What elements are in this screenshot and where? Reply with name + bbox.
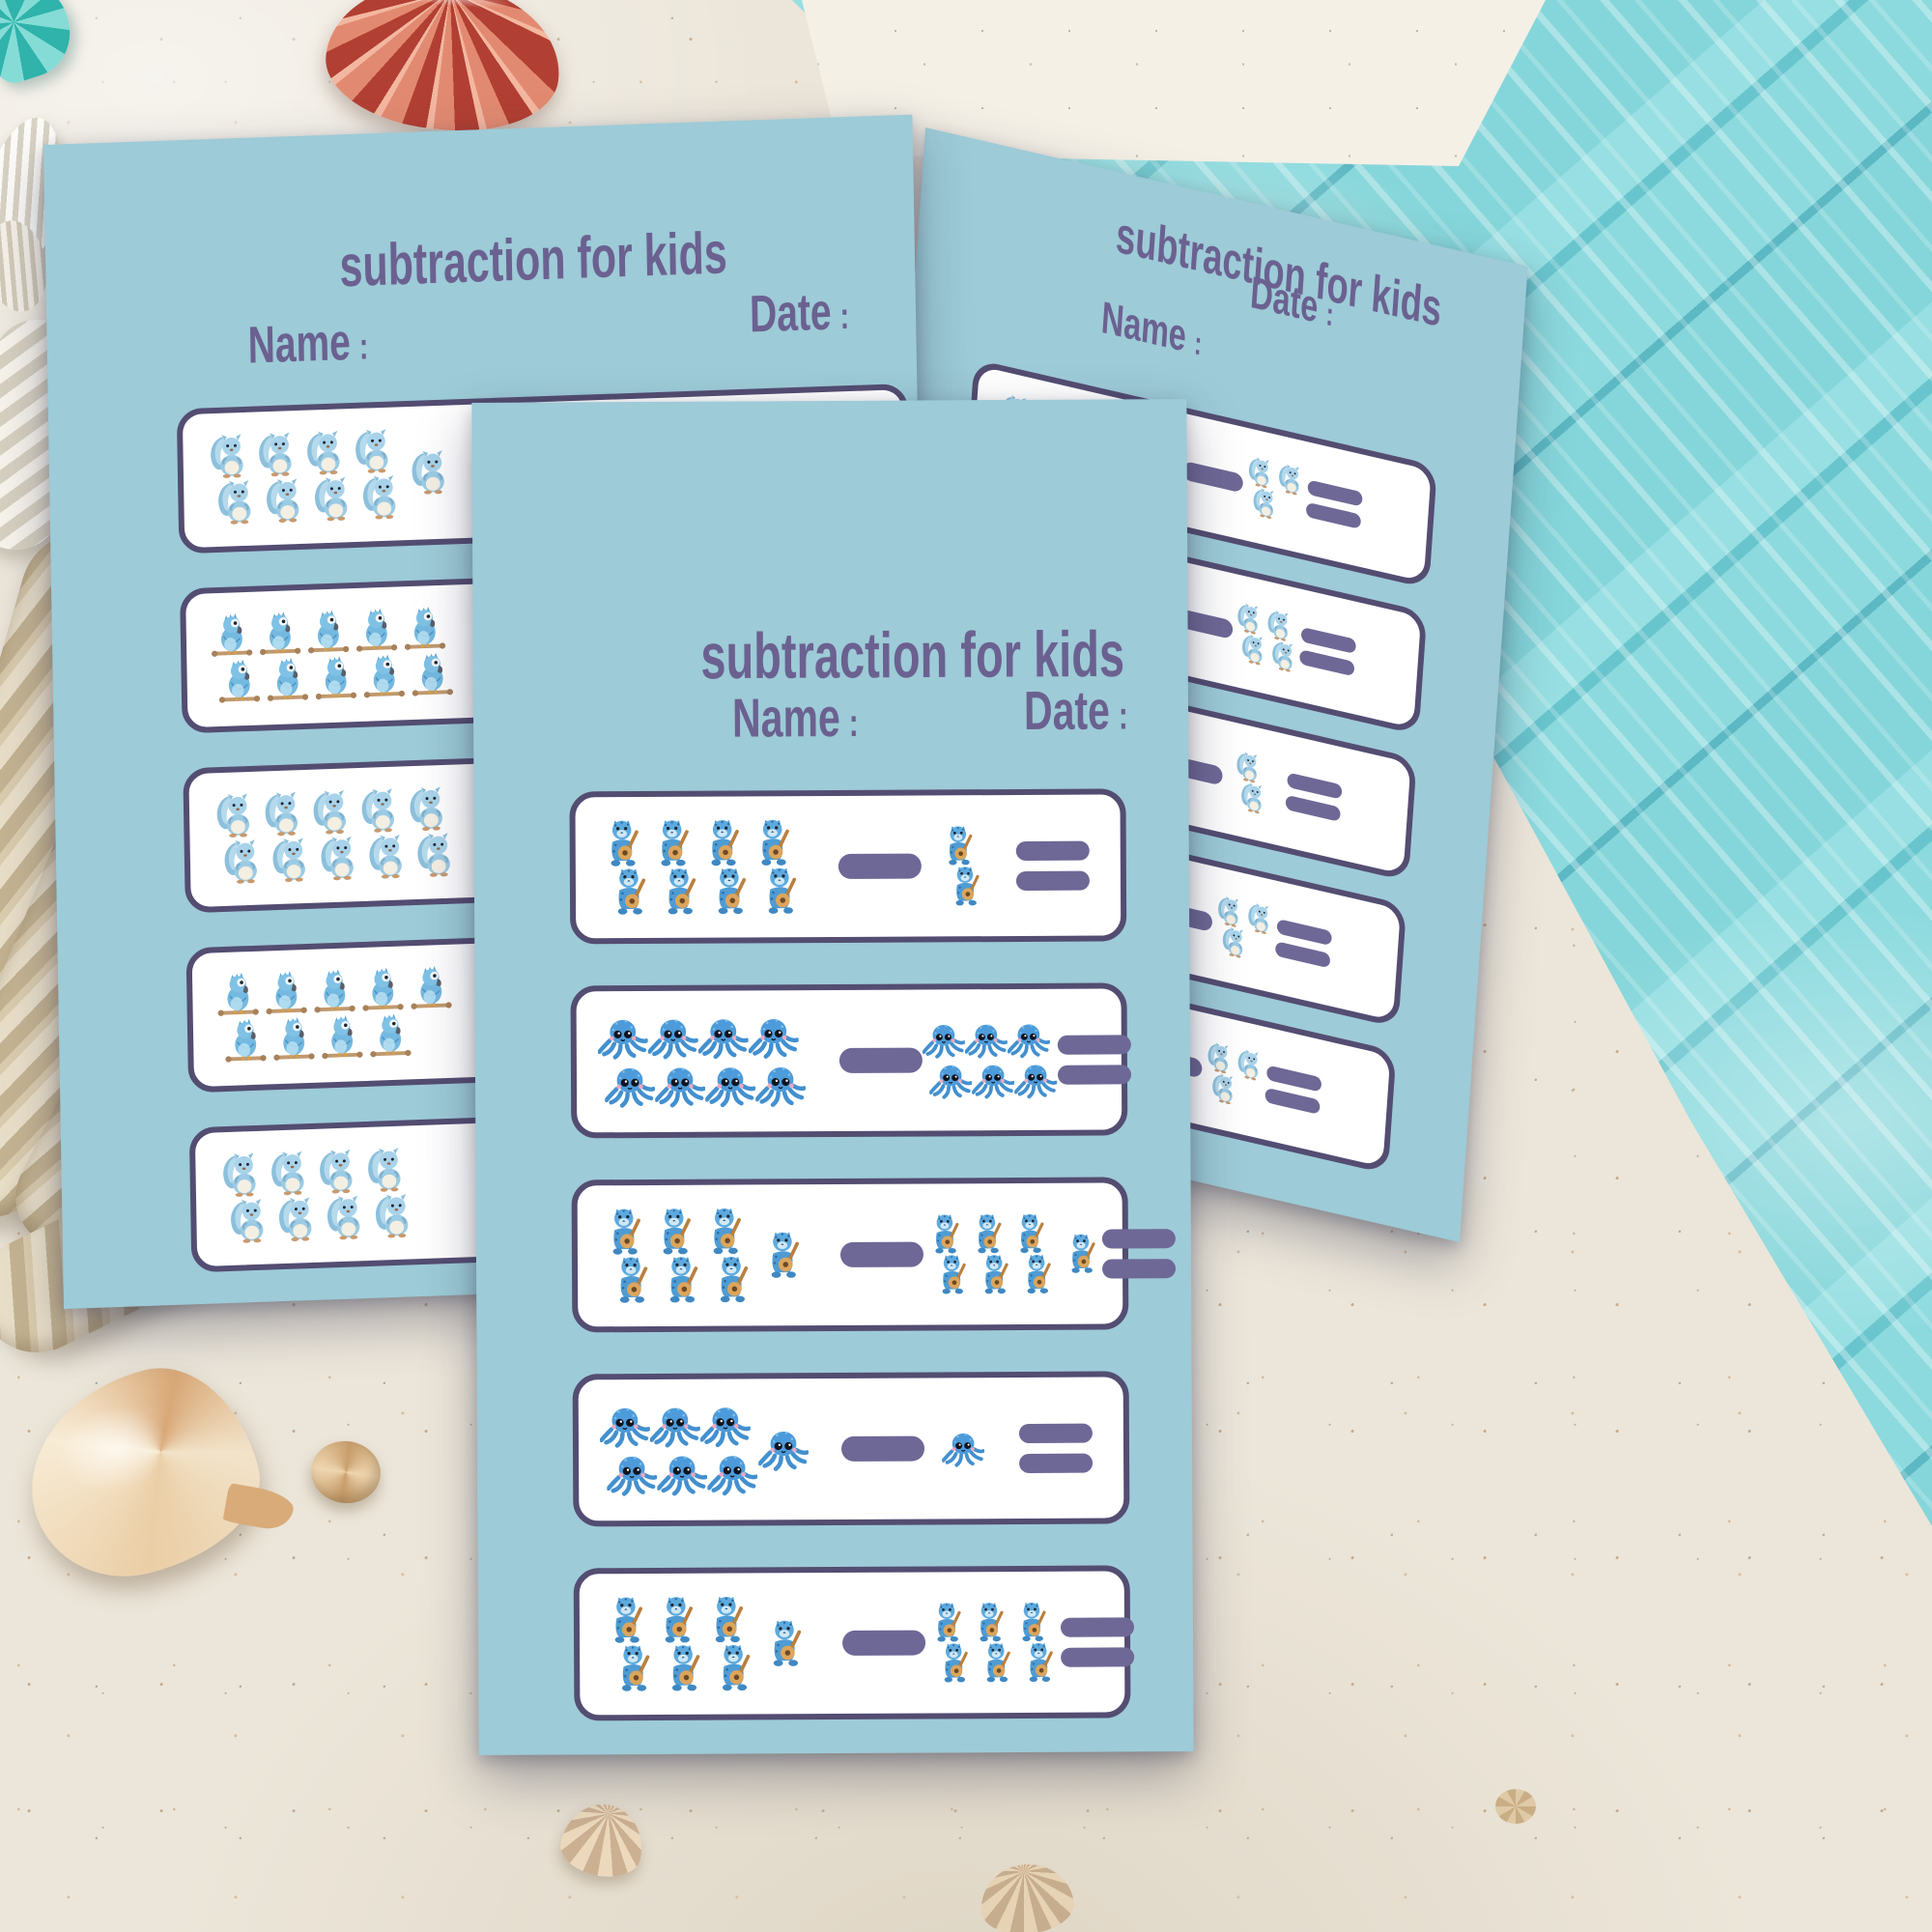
cat-icon: [1010, 1601, 1053, 1643]
octopus-icon: [923, 1018, 965, 1061]
squirrel-icon: [224, 1196, 273, 1246]
cat-icon: [601, 1595, 651, 1645]
subtrahend-group: [923, 1212, 1102, 1296]
minus-icon: [1182, 460, 1244, 493]
cat-icon: [704, 866, 754, 916]
cat-icon: [706, 1254, 756, 1304]
bird-icon: [263, 655, 312, 705]
minuend-group: [211, 784, 461, 887]
minus-icon: [842, 1631, 925, 1656]
cat-icon: [651, 1595, 701, 1645]
squirrel-icon: [1236, 779, 1268, 817]
minuend-group: [599, 1206, 809, 1305]
octopus-icon: [929, 1059, 972, 1101]
octopus-icon: [705, 1060, 755, 1110]
name-label: Name:: [1099, 292, 1204, 366]
squirrel-icon: [259, 789, 308, 839]
squirrel-icon: [272, 1194, 322, 1244]
cat-icon: [649, 1207, 699, 1257]
subtrahend-group: [936, 824, 986, 907]
worksheet-page-center: subtraction for kids Name: Date:: [471, 399, 1193, 1755]
cat-icon: [966, 1212, 1009, 1255]
bird-icon: [358, 966, 408, 1016]
problem-box: [572, 1177, 1129, 1332]
equals-icon: [1264, 1065, 1321, 1114]
octopus-icon: [700, 1401, 751, 1451]
octopus-icon: [650, 1401, 700, 1451]
minuend-group: [216, 1145, 418, 1246]
squirrel-icon: [307, 787, 356, 838]
cat-icon: [658, 1642, 708, 1692]
equals-icon: [1275, 919, 1332, 968]
problem-box: [574, 1565, 1131, 1720]
cat-icon: [943, 865, 985, 907]
octopus-icon: [655, 1060, 705, 1110]
octopus-icon: [600, 1401, 650, 1451]
cat-icon: [699, 1207, 750, 1257]
squirrel-icon: [313, 1147, 362, 1197]
bird-icon: [366, 1011, 415, 1062]
cat-icon: [647, 818, 697, 868]
squirrel-icon: [406, 447, 455, 497]
bird-icon: [213, 971, 263, 1021]
cat-icon: [925, 1601, 968, 1643]
cat-icon: [973, 1253, 1015, 1295]
octopus-icon: [598, 1012, 648, 1063]
squirrel-icon: [204, 432, 253, 482]
squirrel-icon: [252, 430, 301, 480]
bird-icon: [359, 652, 409, 702]
minuend-group: [601, 1594, 810, 1693]
cat-icon: [930, 1253, 973, 1295]
squirrel-icon: [411, 830, 460, 880]
subtrahend-group: [925, 1601, 1061, 1685]
bird-icon: [400, 605, 449, 655]
cat-icon: [1015, 1252, 1058, 1294]
cat-icon: [975, 1641, 1017, 1684]
squirrel-icon: [314, 834, 363, 884]
bird-icon: [310, 967, 359, 1017]
equals-icon: [1057, 1035, 1130, 1084]
bird-icon: [214, 657, 264, 707]
cat-icon: [748, 817, 798, 867]
bird-icon: [318, 1013, 367, 1064]
subtrahend-group: [1201, 1038, 1265, 1114]
problem-box: [571, 982, 1128, 1138]
octopus-icon: [749, 1011, 799, 1062]
equals-icon: [1306, 479, 1363, 528]
bird-icon: [262, 969, 311, 1019]
cat-icon: [757, 1230, 808, 1280]
cat-icon: [656, 1254, 706, 1304]
equals-icon: [1102, 1229, 1176, 1278]
squirrel-icon: [1248, 484, 1281, 523]
octopus-icon: [698, 1012, 749, 1063]
equals-icon: [1060, 1617, 1133, 1666]
cat-icon: [1059, 1232, 1101, 1274]
squirrel-icon: [211, 791, 260, 841]
bird-icon: [207, 611, 256, 662]
octopus-icon: [755, 1060, 806, 1110]
cat-icon: [599, 1207, 649, 1257]
cat-icon: [606, 1255, 656, 1305]
octopus-icon: [758, 1424, 809, 1474]
squirrel-icon: [260, 475, 309, 526]
octopus-icon: [1014, 1058, 1057, 1100]
equals-icon: [1285, 772, 1342, 821]
squirrel-icon: [369, 1191, 418, 1241]
squirrel-icon: [355, 786, 405, 837]
date-label: Date:: [1024, 679, 1128, 742]
bird-icon: [221, 1016, 270, 1066]
cat-icon: [608, 1643, 658, 1693]
cat-icon: [701, 1595, 752, 1645]
bird-icon: [408, 650, 457, 700]
cat-icon: [708, 1642, 758, 1692]
squirrel-icon: [1267, 638, 1300, 676]
squirrel-icon: [300, 428, 350, 478]
subtrahend-group: [1230, 748, 1271, 817]
subtrahend-group: [1211, 892, 1276, 967]
name-label: Name:: [732, 687, 859, 751]
cat-icon: [968, 1601, 1010, 1643]
minus-icon: [840, 1242, 923, 1267]
octopus-icon: [965, 1018, 1008, 1061]
problem-list: [569, 788, 1130, 1720]
equals-icon: [1016, 840, 1090, 890]
squirrel-icon: [361, 1146, 411, 1196]
squirrel-icon: [1207, 1069, 1240, 1108]
minus-icon: [841, 1436, 924, 1462]
minuend-group: [213, 964, 457, 1066]
equals-icon: [1019, 1423, 1093, 1472]
octopus-icon: [707, 1448, 757, 1498]
octopus-icon: [972, 1059, 1014, 1101]
date-label: Date:: [750, 283, 850, 345]
cat-icon: [754, 866, 805, 916]
equals-icon: [1299, 627, 1356, 676]
octopus-icon: [657, 1448, 707, 1498]
octopus-icon: [1008, 1018, 1050, 1061]
cat-icon: [759, 1618, 810, 1668]
subtrahend-group: [923, 1018, 1058, 1102]
beach-scene: subtraction for kids Name: Date: subtrac…: [0, 0, 1932, 1932]
bird-icon: [303, 608, 353, 658]
bird-icon: [270, 1014, 319, 1065]
bird-icon: [407, 964, 456, 1014]
squirrel-icon: [404, 784, 453, 835]
minus-icon: [838, 854, 922, 879]
cat-icon: [936, 824, 979, 867]
cat-icon: [1009, 1212, 1051, 1255]
cat-icon: [923, 1212, 966, 1255]
subtrahend-group: [1242, 453, 1307, 528]
tiny-shell-icon: [1495, 1789, 1536, 1824]
problem-box: [573, 1371, 1130, 1526]
squirrel-icon: [265, 1149, 314, 1199]
squirrel-icon: [362, 832, 412, 882]
name-label: Name:: [247, 313, 369, 376]
squirrel-icon: [218, 837, 268, 887]
squirrel-icon: [321, 1193, 370, 1243]
problem-box: [569, 788, 1126, 944]
squirrel-icon: [349, 427, 398, 477]
squirrel-icon: [267, 835, 316, 885]
octopus-icon: [605, 1061, 655, 1111]
cat-icon: [604, 867, 654, 917]
octopus-icon: [942, 1427, 984, 1469]
minuend-group: [597, 817, 806, 917]
squirrel-icon: [216, 1151, 266, 1201]
minuend-group: [598, 1011, 807, 1111]
squirrel-icon: [212, 477, 261, 527]
minuend-group: [207, 605, 457, 707]
cat-icon: [597, 818, 647, 868]
bird-icon: [311, 654, 360, 704]
cat-icon: [932, 1641, 975, 1684]
squirrel-icon: [308, 474, 357, 525]
subtrahend-group: [942, 1427, 984, 1469]
octopus-icon: [607, 1449, 657, 1499]
cat-icon: [654, 866, 704, 916]
minuend-group: [204, 425, 455, 528]
minus-icon: [839, 1048, 923, 1073]
squirrel-icon: [356, 472, 406, 523]
bird-icon: [352, 607, 401, 657]
cat-icon: [697, 818, 748, 868]
bird-icon: [255, 610, 304, 660]
squirrel-icon: [1218, 923, 1251, 962]
minuend-group: [600, 1400, 810, 1499]
octopus-icon: [648, 1012, 698, 1063]
page-title: subtraction for kids: [555, 615, 1270, 695]
cat-icon: [1017, 1640, 1060, 1683]
